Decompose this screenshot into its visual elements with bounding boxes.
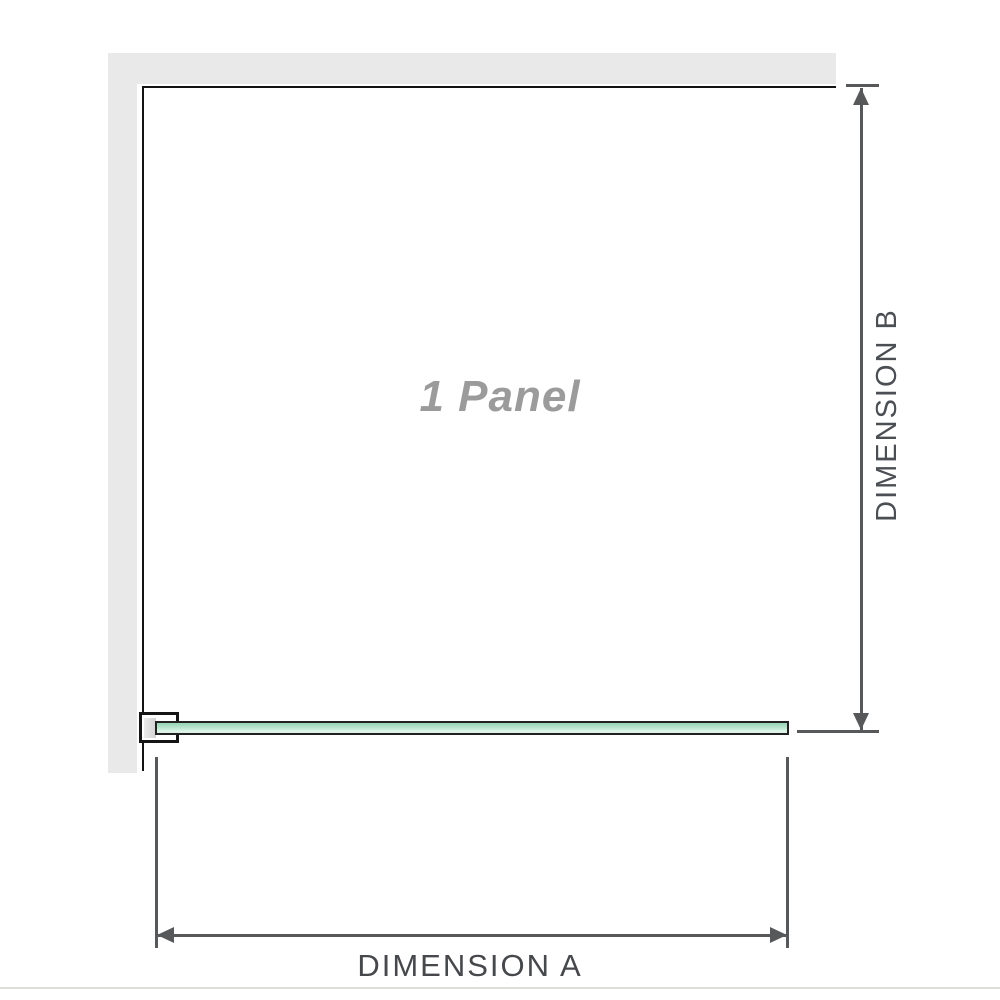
wall-top-band [108,53,836,84]
wall-left-band [108,53,137,773]
panel-outline-top-edge [142,86,836,88]
arrow-down-icon [853,713,869,730]
dimension-a-line [158,934,786,937]
shower-panel-dimension-diagram: 1 Panel DIMENSION B DIMENSION A [0,0,1000,1000]
dimension-a-right-extension-line [786,757,789,948]
arrow-up-icon [853,88,869,105]
dimension-b-line [860,88,863,731]
image-bottom-rule [0,987,1000,989]
panel-count-watermark: 1 Panel [142,372,858,422]
dimension-b-bottom-tick [797,730,879,733]
dimension-b-label: DIMENSION B [872,265,902,565]
arrow-left-icon [157,927,174,943]
dimension-b-top-tick [846,84,879,87]
glass-panel-bar [155,721,789,735]
arrow-right-icon [770,927,787,943]
dimension-a-label: DIMENSION A [142,948,798,984]
panel-outline-left-edge [142,86,144,771]
dimension-a-left-extension-line [155,757,158,948]
